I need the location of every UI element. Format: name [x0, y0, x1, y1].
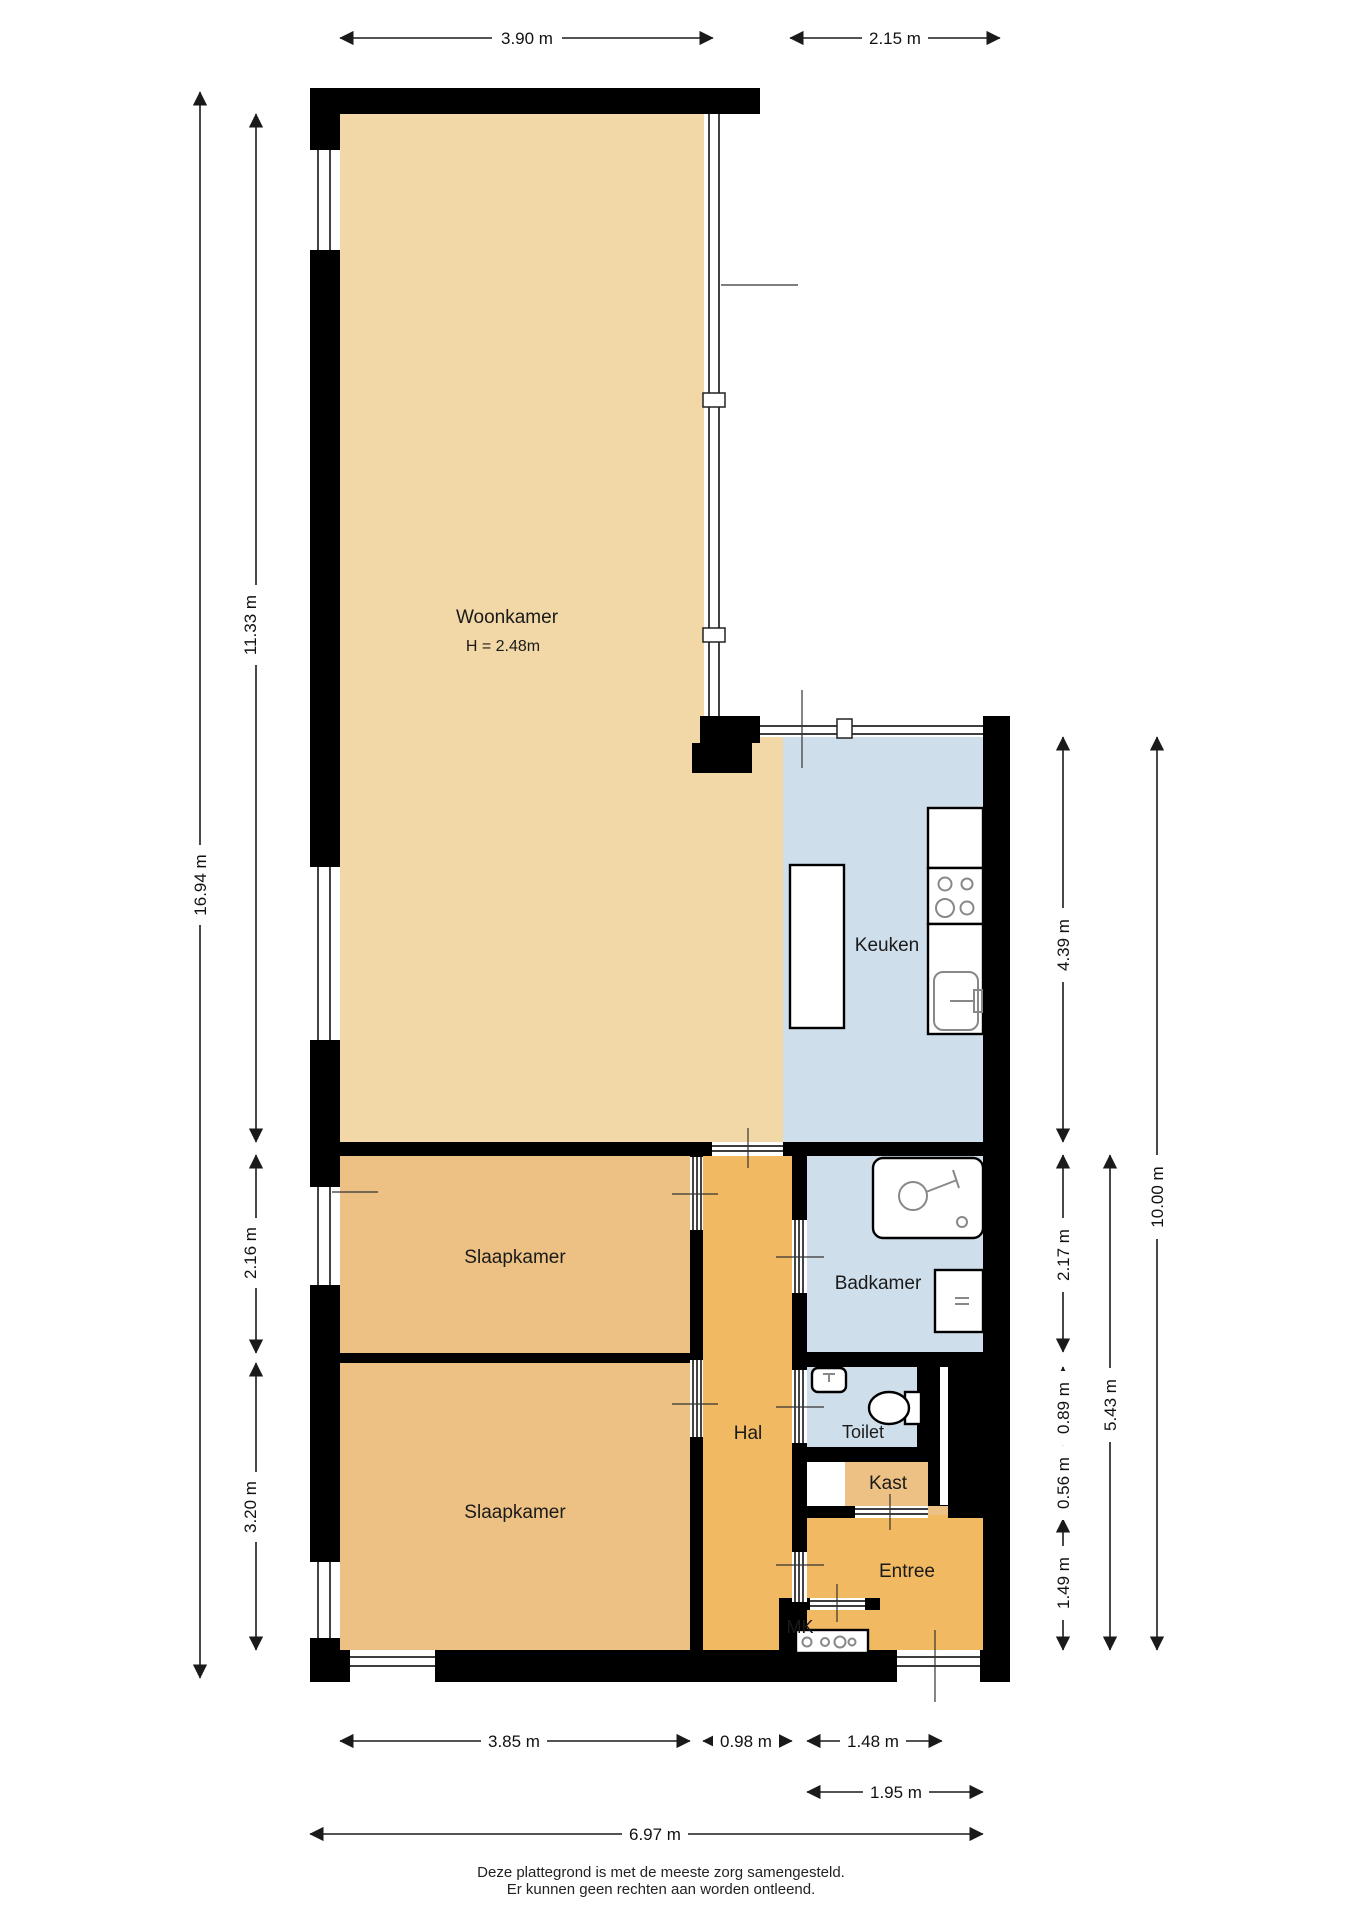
dim-label-right-056: 0.56 m [1054, 1457, 1073, 1509]
hand-basin-icon [812, 1368, 846, 1392]
room-hal-floor [700, 1150, 804, 1660]
label-toilet: Toilet [842, 1422, 884, 1442]
kast-doorway-white-area [807, 1457, 845, 1506]
footer-disclaimer: Deze plattegrond is met de meeste zorg s… [477, 1864, 845, 1898]
label-badkamer: Badkamer [835, 1273, 922, 1294]
window-left-1 [310, 150, 340, 250]
dim-label-bottom-195: 1.95 m [870, 1783, 922, 1802]
dim-label-right-217: 2.17 m [1054, 1229, 1073, 1281]
toilet-bowl-icon [869, 1392, 921, 1424]
kitchen-counter-icon [928, 808, 983, 868]
label-entree: Entree [879, 1561, 935, 1582]
label-keuken: Keuken [855, 935, 919, 956]
floor-plan-canvas: 3.90 m 2.15 m 11.33 m 16.94 m 2.16 m 3.2… [0, 0, 1358, 1920]
dim-label-top-390: 3.90 m [501, 29, 553, 48]
stove-icon [928, 868, 983, 924]
label-mk: MK [787, 1617, 814, 1637]
dim-label-left-1133: 11.33 m [241, 595, 260, 655]
footer-line-1: Deze plattegrond is met de meeste zorg s… [477, 1864, 845, 1881]
dim-label-bottom-697: 6.97 m [629, 1825, 681, 1844]
dim-label-right-149: 1.49 m [1054, 1557, 1073, 1609]
window-bottom-left [350, 1650, 435, 1682]
room-floors [322, 100, 1010, 1660]
label-hal: Hal [734, 1423, 763, 1444]
dim-label-right-089: 0.89 m [1054, 1382, 1073, 1434]
window-left-4 [310, 1562, 340, 1638]
dim-label-left-216: 2.16 m [241, 1227, 260, 1279]
dim-label-right-1000: 10.00 m [1148, 1166, 1167, 1227]
dim-label-bottom-385: 3.85 m [488, 1732, 540, 1751]
label-slaapkamer-2: Slaapkamer [464, 1502, 566, 1523]
label-woonkamer-height: H = 2.48m [466, 638, 540, 655]
dim-label-bottom-098: 0.98 m [720, 1732, 772, 1751]
label-woonkamer: Woonkamer [456, 607, 559, 628]
dim-label-left-320: 3.20 m [241, 1481, 260, 1533]
window-left-3 [310, 1187, 340, 1285]
dim-label-left-1694: 16.94 m [191, 854, 210, 915]
window-wall-woonkamer-east [703, 114, 725, 716]
kitchen-island-icon [790, 865, 844, 1028]
window-keuken-north [760, 719, 983, 738]
dim-label-bottom-148: 1.48 m [847, 1732, 899, 1751]
label-kast: Kast [869, 1473, 908, 1494]
washing-machine-icon [935, 1270, 983, 1332]
dim-label-right-543: 5.43 m [1101, 1379, 1120, 1431]
footer-line-2: Er kunnen geen rechten aan worden ontlee… [507, 1881, 816, 1898]
service-shaft [940, 1367, 948, 1505]
dim-label-top-215: 2.15 m [869, 29, 921, 48]
dim-label-right-439: 4.39 m [1054, 919, 1073, 971]
window-left-2 [310, 867, 340, 1040]
label-slaapkamer-1: Slaapkamer [464, 1247, 566, 1268]
shower-icon [873, 1158, 983, 1238]
kitchen-sink-icon [928, 924, 983, 1034]
